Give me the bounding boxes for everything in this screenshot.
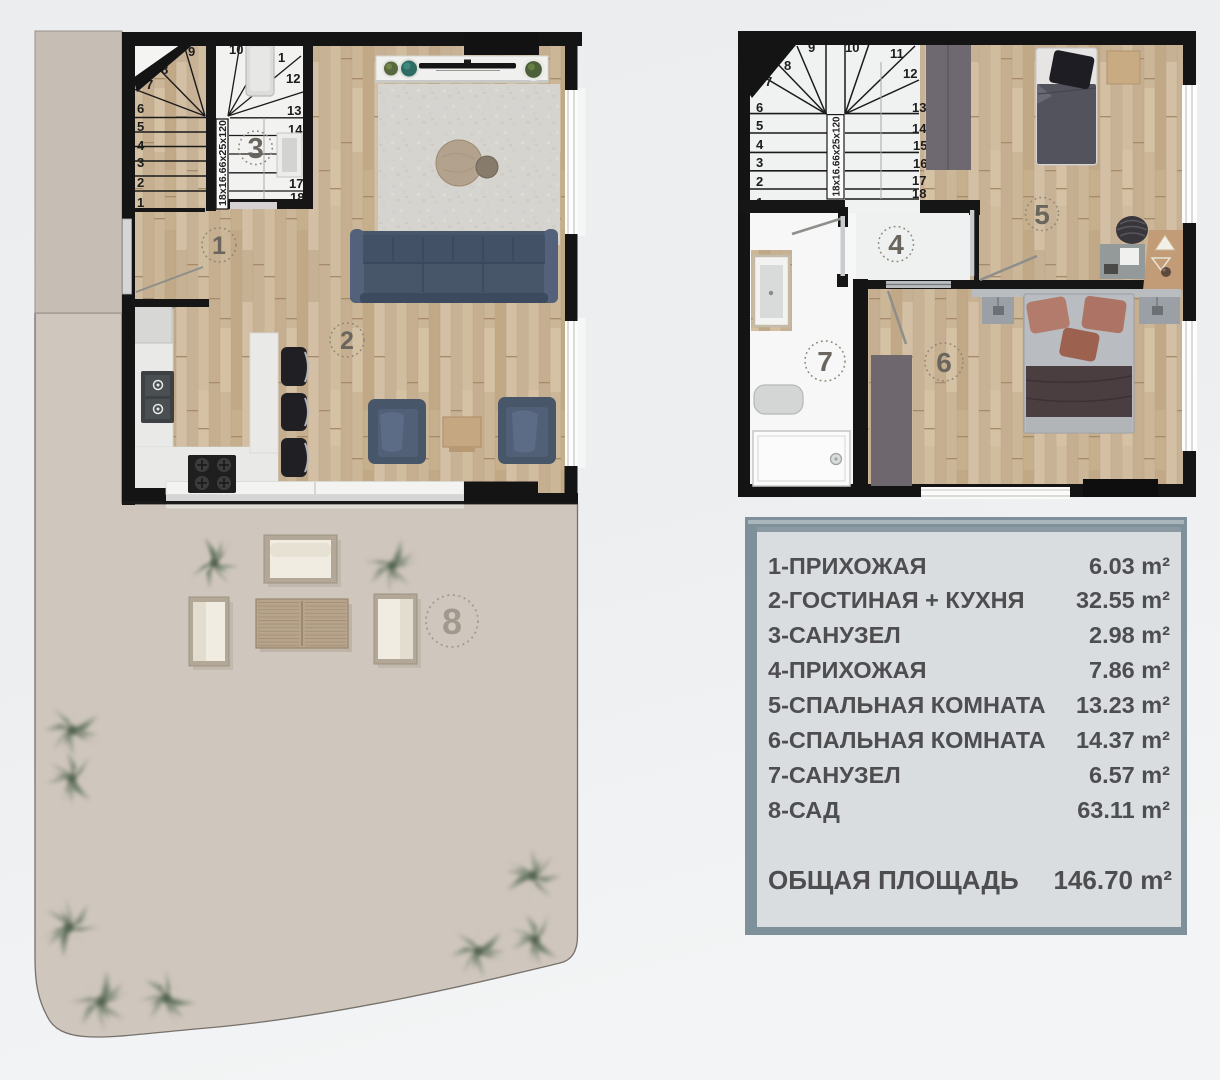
svg-text:2: 2 — [340, 327, 354, 355]
svg-text:18x16.66x25x120: 18x16.66x25x120 — [831, 116, 843, 196]
svg-text:8: 8 — [442, 601, 462, 642]
svg-text:2-ГОСТИНАЯ + КУХНЯ: 2-ГОСТИНАЯ + КУХНЯ — [768, 587, 1025, 613]
svg-text:12: 12 — [903, 66, 917, 81]
svg-text:6: 6 — [936, 347, 952, 378]
svg-text:16: 16 — [913, 156, 927, 171]
svg-text:4-ПРИХОЖАЯ: 4-ПРИХОЖАЯ — [768, 657, 927, 683]
svg-text:2: 2 — [137, 175, 144, 190]
svg-text:ОБЩАЯ ПЛОЩАДЬ: ОБЩАЯ ПЛОЩАДЬ — [768, 865, 1019, 895]
svg-text:5: 5 — [756, 118, 763, 133]
svg-text:63.11 m²: 63.11 m² — [1077, 797, 1170, 823]
svg-text:8: 8 — [784, 58, 791, 73]
svg-text:6-СПАЛЬНАЯ КОМНАТА: 6-СПАЛЬНАЯ КОМНАТА — [768, 727, 1046, 753]
svg-text:3: 3 — [248, 133, 264, 165]
svg-text:2: 2 — [756, 174, 763, 189]
svg-text:32.55 m²: 32.55 m² — [1076, 587, 1170, 613]
svg-text:2.98 m²: 2.98 m² — [1089, 622, 1170, 648]
svg-text:14.37 m²: 14.37 m² — [1076, 727, 1170, 753]
svg-text:6.03 m²: 6.03 m² — [1089, 553, 1170, 579]
svg-text:5-СПАЛЬНАЯ КОМНАТА: 5-СПАЛЬНАЯ КОМНАТА — [768, 692, 1046, 718]
svg-text:6: 6 — [137, 101, 144, 116]
svg-text:11: 11 — [890, 46, 904, 61]
svg-text:15: 15 — [913, 138, 927, 153]
svg-text:3: 3 — [756, 155, 763, 170]
svg-text:4: 4 — [137, 138, 145, 153]
svg-text:4: 4 — [756, 137, 764, 152]
svg-text:8-САД: 8-САД — [768, 797, 840, 823]
svg-text:5: 5 — [1034, 199, 1050, 230]
svg-text:6.57 m²: 6.57 m² — [1089, 762, 1170, 788]
svg-text:18x16.66x25x120: 18x16.66x25x120 — [218, 120, 229, 206]
svg-text:13.23 m²: 13.23 m² — [1076, 692, 1170, 718]
svg-text:12: 12 — [286, 71, 300, 86]
svg-text:1: 1 — [212, 232, 226, 260]
svg-text:1-ПРИХОЖАЯ: 1-ПРИХОЖАЯ — [768, 553, 927, 579]
svg-text:7.86 m²: 7.86 m² — [1089, 657, 1170, 683]
svg-text:17: 17 — [289, 176, 303, 191]
svg-text:6: 6 — [756, 100, 763, 115]
svg-text:18: 18 — [912, 186, 926, 201]
svg-text:1: 1 — [137, 195, 144, 210]
svg-text:7-САНУЗЕЛ: 7-САНУЗЕЛ — [768, 762, 901, 788]
svg-text:4: 4 — [888, 229, 904, 260]
svg-text:14: 14 — [912, 121, 927, 136]
svg-text:146.70 m²: 146.70 m² — [1053, 865, 1172, 895]
svg-text:5: 5 — [137, 119, 144, 134]
svg-text:3: 3 — [137, 155, 144, 170]
svg-text:1: 1 — [278, 50, 285, 65]
svg-text:3-САНУЗЕЛ: 3-САНУЗЕЛ — [768, 622, 901, 648]
svg-text:13: 13 — [287, 103, 301, 118]
svg-text:7: 7 — [817, 346, 833, 377]
svg-text:13: 13 — [912, 100, 926, 115]
